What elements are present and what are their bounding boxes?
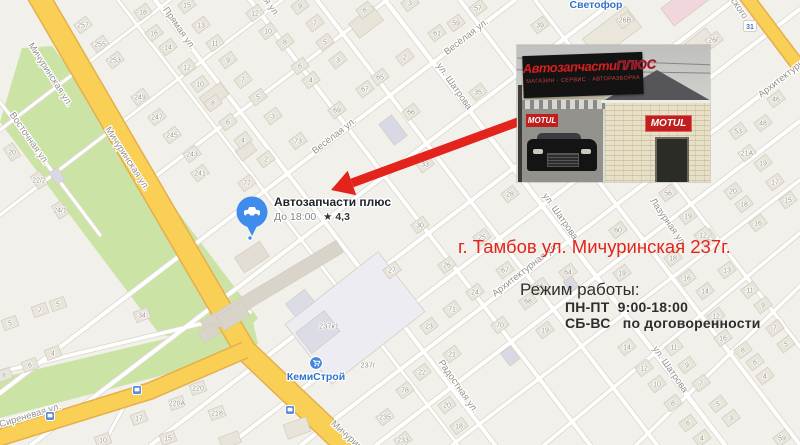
building-number: 18 — [455, 424, 463, 431]
marker-hours: До 18:00 — [274, 211, 316, 223]
building-number: 220А — [169, 401, 186, 408]
bus-glyph — [135, 388, 140, 392]
building-number: 73 — [294, 139, 302, 146]
building-number: 14 — [623, 345, 631, 352]
building-number: 5 — [323, 40, 327, 47]
building-number: 17 — [771, 180, 779, 187]
building-number: 21А — [741, 151, 754, 158]
building-number: 33 — [421, 162, 429, 169]
building-number: 253 — [109, 58, 121, 65]
building-number: 53 — [734, 129, 742, 136]
building-number: 22 — [418, 370, 426, 377]
building-number: 18 — [740, 202, 748, 209]
photo-door — [655, 137, 689, 182]
building-number: 12 — [251, 11, 259, 18]
building-number: 10 — [264, 29, 272, 36]
building-number: 70 — [496, 323, 504, 330]
building-number: 13 — [723, 268, 731, 275]
building-number: 17 — [135, 416, 143, 423]
building-number: 5 — [716, 402, 720, 409]
building-number: 20 — [8, 150, 16, 157]
route-shield: 31 — [744, 21, 757, 32]
building-number: 255 — [94, 42, 106, 49]
building-number: 27 — [388, 268, 396, 275]
building-number: 7 — [773, 326, 777, 333]
building-number: 8 — [741, 348, 745, 355]
building-number: 24/1 — [53, 208, 67, 215]
photo-roof-fascia — [601, 100, 710, 103]
building-number: 235 — [379, 415, 391, 422]
building-number: 20 — [729, 189, 737, 196]
building-number: 237к1 — [319, 322, 339, 331]
photo-banner: MOTUL — [521, 109, 603, 182]
building-number: 4 — [763, 374, 767, 381]
building-number: 4 — [700, 436, 704, 443]
building-number: 30 — [416, 223, 424, 230]
building-number: 11 — [211, 41, 218, 48]
building-number: 23 — [425, 324, 433, 331]
cart-wheel — [318, 365, 320, 367]
building-number: 59 — [778, 436, 786, 443]
address-annotation: г. Тамбов ул. Мичуринская 237г. — [458, 236, 731, 258]
building-number: 65 — [376, 75, 384, 82]
poi-label: КемиСтрой — [287, 371, 345, 383]
building-number: 35 — [474, 90, 482, 97]
building-number: 16 — [150, 31, 158, 38]
building-number: 7 — [38, 308, 42, 315]
building-number: 10 — [196, 82, 204, 89]
sign-accent-text: ПЛЮС — [616, 56, 656, 72]
building-number: 5 — [56, 302, 60, 309]
building-number: 3 — [408, 1, 412, 8]
building-number: 245 — [166, 133, 178, 140]
building-number: 12 — [640, 366, 648, 373]
building-number: 241 — [194, 171, 206, 178]
building-number: 6 — [363, 8, 367, 15]
schedule-row-weekdays: ПН-ПТ 9:00-18:00 — [565, 300, 761, 316]
building-number: 7 — [313, 21, 317, 28]
building-number: 60 — [614, 228, 622, 235]
building-number: 3 — [271, 114, 275, 121]
building-number: 28 — [506, 192, 514, 199]
building-number: 15 — [784, 198, 792, 205]
building-number: 22/2 — [32, 178, 46, 185]
building-number: 7 — [699, 381, 703, 388]
building-number: 9 — [685, 363, 689, 370]
building-number: 9 — [761, 303, 765, 310]
sign-main-text: Автозапчасти — [522, 58, 616, 76]
building-number: 243 — [186, 152, 198, 159]
building-number: 8 — [2, 373, 6, 380]
building-number: 5 — [8, 321, 12, 328]
building-number: 237г — [360, 361, 376, 370]
cart-wheel — [314, 365, 316, 367]
schedule-title: Режим работы: — [520, 280, 761, 300]
building-number: 57 — [474, 6, 482, 13]
bus-stop-icon[interactable] — [133, 386, 142, 395]
building-number: 71 — [448, 307, 456, 314]
car-icon-wheel — [254, 214, 258, 218]
building-number: 9 — [226, 58, 230, 65]
building-number: 56 — [664, 191, 672, 198]
building-number: 8 — [211, 101, 215, 108]
building-number: 12 — [183, 65, 191, 72]
building-number: 15 — [183, 3, 191, 10]
building-number: 10 — [653, 382, 661, 389]
building-number: 4 — [309, 78, 313, 85]
building-number: 15 — [164, 436, 172, 443]
car-headlight — [581, 149, 591, 154]
motul-wall-sign: MOTUL — [645, 115, 692, 132]
building-number: 218 — [211, 411, 223, 418]
building-number: 67 — [501, 268, 509, 275]
building-number: 19 — [759, 161, 767, 168]
building-number: 9 — [298, 4, 302, 11]
building-number: 77 — [243, 181, 251, 188]
building-number: 5 — [784, 342, 788, 349]
map-screenshot: 2572552532492472452432411816141210864215… — [0, 0, 800, 445]
building-number: 6 — [28, 363, 32, 370]
building-number: 4 — [51, 351, 55, 358]
marker-rating: ★ 4,3 — [323, 211, 350, 223]
car-headlight — [533, 149, 543, 154]
building-number: 6 — [686, 421, 690, 428]
marker-title: Автозапчасти плюс — [274, 195, 391, 209]
building-number: 78 — [401, 388, 409, 395]
building-number: 10 — [99, 438, 107, 445]
building-number: 4 — [241, 138, 245, 145]
building-number: 8 — [671, 401, 675, 408]
photo-pole — [518, 85, 522, 182]
sign-sub-text: МАГАЗИН · СЕРВИС · АВТОРАЗБОРКА — [523, 75, 643, 85]
building-number: 21 — [448, 352, 456, 359]
car-icon-wheel — [246, 214, 250, 218]
building-number: 39 — [536, 23, 544, 30]
building-number: 16 — [754, 221, 762, 228]
building-number: 18 — [139, 10, 147, 17]
bus-glyph — [288, 408, 293, 412]
building-number: 3 — [336, 58, 340, 65]
building-number: 8 — [283, 40, 287, 47]
building-number: 11 — [670, 345, 677, 352]
building-number: 26В — [619, 18, 632, 25]
building-number: 59 — [452, 21, 460, 28]
building-number: 247 — [151, 115, 163, 122]
building-number: 249 — [134, 95, 146, 102]
building-number: 5 — [256, 95, 260, 102]
building-number: 13 — [197, 23, 205, 30]
building-number: 7 — [241, 78, 245, 85]
car-grille — [547, 153, 579, 167]
building-number: 233 — [397, 438, 409, 445]
pin-dot — [248, 236, 253, 241]
storefront-photo: MOTUL MOTUL АвтозапчастиПЛЮС МАГАЗИН · С… — [517, 45, 710, 182]
building-number: 26Г — [708, 38, 720, 45]
bus-glyph — [48, 414, 53, 418]
building-number: 19 — [684, 214, 692, 221]
building-number: 69 — [333, 108, 341, 115]
building-number: 48 — [759, 121, 767, 128]
bus-stop-icon[interactable] — [286, 406, 295, 415]
building-number: 24 — [471, 290, 479, 297]
building-number: 67 — [361, 87, 369, 94]
building-number: 34 — [138, 313, 146, 320]
building-number: 46 — [772, 97, 780, 104]
building-number: 26 — [443, 263, 451, 270]
motul-banner-logo: MOTUL — [526, 114, 558, 127]
building-number: 14 — [164, 45, 172, 52]
building-number: 66 — [407, 110, 415, 117]
building-number: 16 — [719, 336, 727, 343]
schedule-row-weekend: СБ-ВС по договоренности — [565, 316, 761, 332]
store-sign: АвтозапчастиПЛЮС МАГАЗИН · СЕРВИС · АВТО… — [522, 52, 643, 98]
building-number: 257 — [77, 23, 89, 30]
poi-label: Светофор — [570, 0, 623, 11]
bus-stop-icon[interactable] — [46, 412, 55, 421]
building-number: 6 — [226, 120, 230, 127]
building-number: 19 — [618, 271, 626, 278]
building-number: 2 — [403, 55, 407, 62]
building-number: 20 — [443, 403, 451, 410]
building-number: 6 — [753, 360, 757, 367]
building-number: 61 — [433, 31, 441, 38]
building-number: 6 — [298, 64, 302, 71]
schedule-annotation: Режим работы: ПН-ПТ 9:00-18:00 СБ-ВС по … — [520, 280, 761, 331]
building-number: 2 — [264, 157, 268, 164]
building-number: 64 — [564, 270, 572, 277]
photo-logo-band — [521, 100, 605, 109]
poi-светофор[interactable]: Светофор — [570, 0, 623, 11]
building-number: 3 — [729, 416, 733, 423]
shopping-cart-icon — [310, 357, 323, 370]
shield-number: 31 — [746, 24, 754, 31]
building-number: 220 — [192, 386, 204, 393]
